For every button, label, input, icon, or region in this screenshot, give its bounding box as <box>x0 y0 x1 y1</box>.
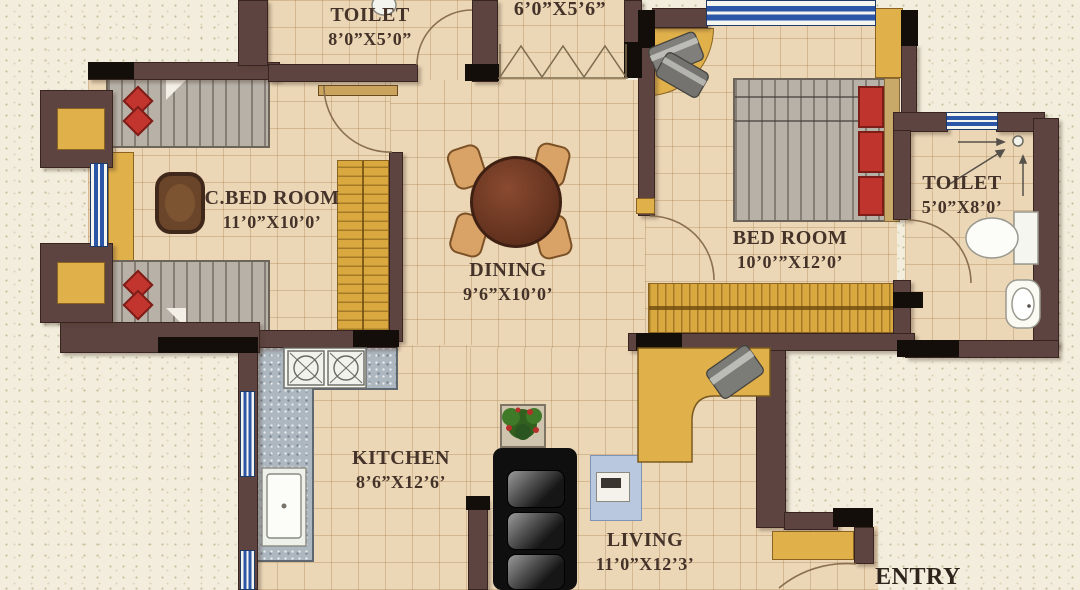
room-dims: 8’6”X12’6’ <box>352 471 450 494</box>
room-dims: 10’0’”X12’0’ <box>733 251 848 274</box>
room-label-toilet-top: TOILET 8’0”X5’0” <box>328 2 412 51</box>
room-dims: 11’0”X12’3’ <box>596 553 695 576</box>
room-dims: 9’6”X10’0’ <box>463 283 553 306</box>
room-name: TOILET <box>328 2 412 28</box>
wc-icon <box>966 212 1038 264</box>
room-label-kitchen: KITCHEN 8’6”X12’6’ <box>352 445 450 494</box>
door-arc-toilet-right <box>908 220 971 283</box>
room-label-entry: ENTRY <box>875 562 961 590</box>
room-name: BED ROOM <box>733 225 848 251</box>
room-label-dining: DINING 9’6”X10’0’ <box>463 257 553 306</box>
room-name: TOILET <box>922 170 1002 196</box>
shower-head-icon <box>1013 136 1023 146</box>
room-label-toilet-right: TOILET 5’0”X8’0’ <box>922 170 1002 219</box>
room-name: LIVING <box>596 527 695 553</box>
plant-icon <box>502 408 542 441</box>
door-arc-entry <box>779 564 856 588</box>
floor-plan: TOILET 8’0”X5’0” 6’0”X5’6” C.BED ROOM 11… <box>0 0 1080 590</box>
room-dims: 6’0”X5’6” <box>514 0 606 22</box>
dress-wardrobe-zigzag <box>498 44 628 78</box>
wash-basin-icon <box>1006 280 1040 328</box>
room-label-living: LIVING 11’0”X12’3’ <box>596 527 695 576</box>
sink-icon <box>262 468 306 546</box>
room-label-bedroom: BED ROOM 10’0’”X12’0’ <box>733 225 848 274</box>
room-dims: 11’0”X10’0’ <box>205 211 340 234</box>
room-dims: 5’0”X8’0’ <box>922 196 1002 219</box>
room-name: ENTRY <box>875 562 961 590</box>
room-name: C.BED ROOM <box>205 185 340 211</box>
door-arc-toilet-top <box>417 10 472 65</box>
door-arc-bedroom <box>650 216 714 280</box>
door-arc-cbedroom <box>324 86 392 152</box>
stove-icon <box>284 348 366 388</box>
room-name: DINING <box>463 257 553 283</box>
room-name: KITCHEN <box>352 445 450 471</box>
room-label-cbedroom: C.BED ROOM 11’0”X10’0’ <box>205 185 340 234</box>
room-label-dress: 6’0”X5’6” <box>514 0 606 22</box>
room-dims: 8’0”X5’0” <box>328 28 412 51</box>
